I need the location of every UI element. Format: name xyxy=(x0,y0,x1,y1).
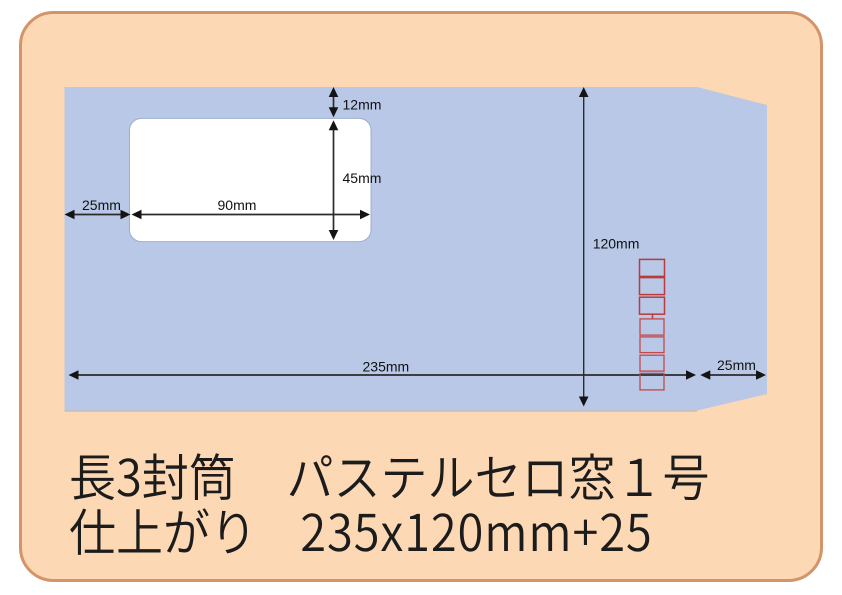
svg-text:25mm: 25mm xyxy=(717,357,756,373)
svg-text:12mm: 12mm xyxy=(343,97,382,113)
svg-text:235mm: 235mm xyxy=(363,359,410,375)
svg-text:45mm: 45mm xyxy=(343,170,382,186)
svg-text:90mm: 90mm xyxy=(218,197,257,213)
svg-text:25mm: 25mm xyxy=(82,197,121,213)
svg-text:120mm: 120mm xyxy=(593,235,640,251)
